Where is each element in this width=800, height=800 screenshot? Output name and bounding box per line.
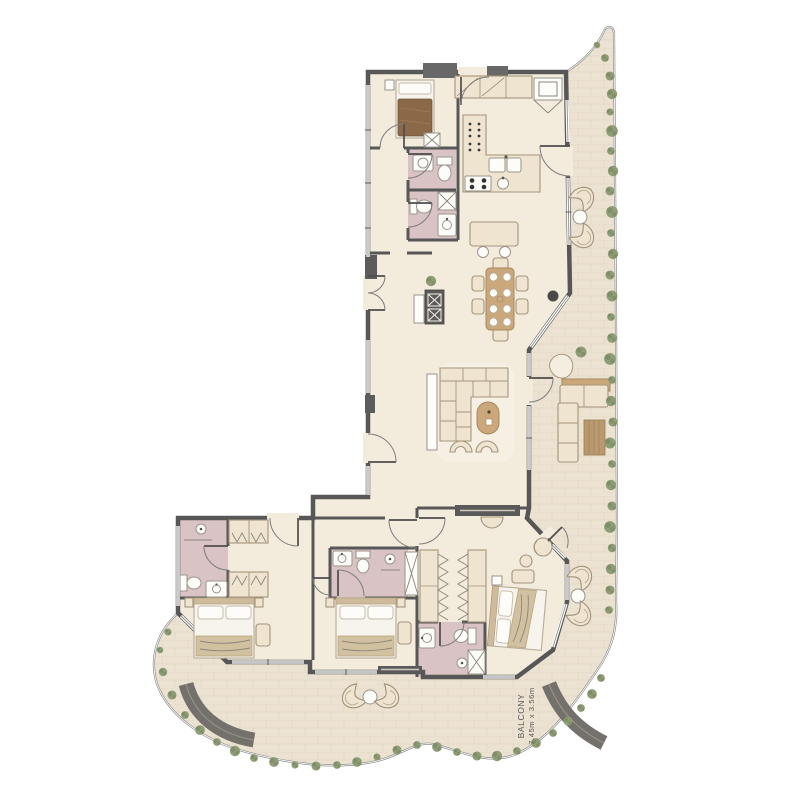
vanity — [438, 214, 456, 236]
floor-plan-page: BALCONY 7.45m x 3.56m — [0, 0, 800, 800]
toilet — [356, 551, 370, 573]
wall-pillar — [365, 395, 375, 413]
window — [567, 100, 568, 142]
basin — [418, 158, 428, 168]
dining-chair — [516, 276, 528, 291]
tv-unit — [378, 666, 422, 673]
master-bed — [487, 586, 546, 650]
dining-chair — [472, 299, 484, 314]
cooktop — [465, 176, 491, 191]
nightstand — [185, 598, 193, 607]
dining-chair — [516, 299, 528, 314]
duct-shaft — [405, 552, 418, 595]
balcony-label: BALCONY — [516, 694, 526, 739]
side-table — [573, 210, 587, 224]
nightstand — [397, 598, 405, 607]
wardrobe — [229, 520, 268, 543]
nightstand — [326, 598, 334, 607]
double-bed — [194, 598, 254, 658]
bedroom-chair — [256, 624, 270, 646]
nightstand — [492, 576, 502, 585]
console-table — [427, 374, 437, 450]
vanity — [333, 551, 352, 566]
side-table — [385, 80, 394, 90]
bedroom-chair — [398, 622, 411, 644]
round-basin — [457, 658, 467, 668]
plant-icon — [426, 276, 436, 286]
console-panel — [414, 295, 424, 323]
nightstand — [255, 598, 263, 607]
washing-machine — [424, 133, 440, 147]
structural-column — [548, 291, 559, 302]
island-stool — [478, 247, 489, 258]
shower — [438, 192, 456, 210]
vanity — [206, 581, 227, 597]
kitchen-island — [470, 222, 518, 246]
centerpiece — [497, 296, 503, 302]
island-stool — [500, 247, 511, 258]
shower — [468, 650, 485, 674]
dining-chair — [493, 329, 508, 341]
double-bed — [336, 598, 396, 658]
bed-bench — [512, 570, 534, 583]
plant-icon — [575, 346, 586, 357]
maid-bed — [396, 80, 434, 138]
balcony-dimensions: 7.45m x 3.56m — [527, 687, 536, 744]
pouf — [520, 555, 532, 567]
kitchen-sink — [489, 155, 521, 172]
toilet — [454, 628, 476, 644]
toilet — [410, 199, 432, 214]
floor-plan-drawing: BALCONY 7.45m x 3.56m — [0, 0, 800, 800]
wardrobe — [229, 572, 268, 597]
coffee-table — [477, 402, 499, 434]
vanity — [419, 628, 435, 648]
living-room — [427, 363, 514, 462]
toilet — [437, 157, 452, 181]
shaft-block — [423, 63, 457, 78]
deck-mat — [584, 420, 605, 455]
side-table — [571, 589, 585, 603]
dining-chair — [472, 276, 484, 291]
